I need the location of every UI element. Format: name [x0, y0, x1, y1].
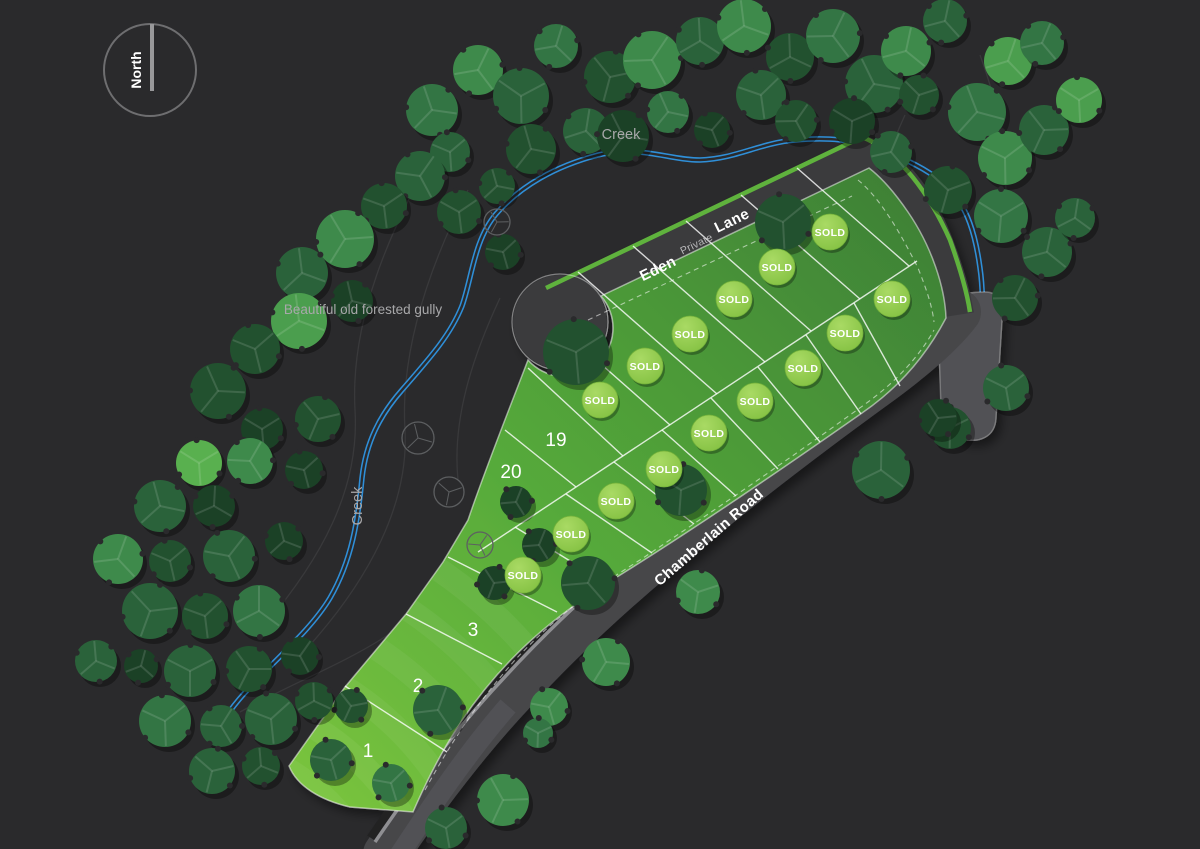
- tree-icon: [187, 746, 239, 799]
- lot-number-label[interactable]: 1: [363, 741, 374, 762]
- tree-icon: [93, 534, 147, 589]
- sold-badge-label: SOLD: [585, 395, 616, 407]
- tree-icon: [285, 449, 327, 494]
- sold-badge-label: SOLD: [694, 428, 725, 440]
- tree-icon: [241, 747, 284, 790]
- tree-icon: [281, 637, 323, 680]
- tree-icon: [139, 692, 195, 752]
- lot-number-label[interactable]: 19: [545, 430, 566, 451]
- tree-icon: [852, 441, 914, 504]
- sold-badge-label: SOLD: [601, 496, 632, 508]
- tree-icon: [694, 111, 734, 153]
- sold-badge-label: SOLD: [508, 570, 539, 582]
- north-label: North: [128, 51, 144, 88]
- tree-icon: [192, 485, 239, 532]
- sold-badge-label: SOLD: [762, 262, 793, 274]
- tree-icon: [176, 437, 226, 491]
- tree-icon: [200, 705, 246, 752]
- tree-icon: [245, 690, 301, 750]
- sold-badge-label: SOLD: [649, 464, 680, 476]
- tree-icon: [474, 773, 533, 831]
- tree-icon: [974, 186, 1032, 248]
- tree-icon: [131, 480, 190, 537]
- tree-icon: [223, 646, 276, 697]
- tree-icon: [644, 91, 693, 138]
- tree-icon: [534, 24, 582, 73]
- tree-icon: [182, 591, 232, 644]
- creek-label-top: Creek: [602, 127, 641, 143]
- tree-icon: [233, 585, 289, 642]
- sold-badge-label: SOLD: [719, 294, 750, 306]
- sold-badge-label: SOLD: [630, 361, 661, 373]
- tree-icon: [120, 582, 182, 644]
- lot-number-label[interactable]: 20: [500, 462, 521, 483]
- sold-badge-label: SOLD: [675, 329, 706, 341]
- sold-badge-label: SOLD: [830, 328, 861, 340]
- bare-tree-icon: [434, 477, 464, 507]
- tree-icon: [149, 538, 195, 587]
- sold-badge-label: SOLD: [740, 396, 771, 408]
- site-plan-map: 1920321 SOLDSOLDSOLDSOLDSOLDSOLDSOLDSOLD…: [0, 0, 1200, 849]
- sold-badge-label: SOLD: [815, 227, 846, 239]
- north-compass: North: [104, 24, 196, 116]
- tree-icon: [504, 124, 560, 179]
- tree-icon: [293, 394, 345, 447]
- lot-number-label[interactable]: 3: [468, 620, 479, 641]
- tree-icon: [263, 522, 307, 565]
- tree-icon: [164, 642, 220, 702]
- sold-badge-label: SOLD: [877, 294, 908, 306]
- sold-badge-label: SOLD: [788, 363, 819, 375]
- tree-icon: [675, 567, 724, 619]
- creek-label-left: Creek: [350, 486, 366, 525]
- bare-tree-icon: [402, 422, 434, 454]
- tree-icon: [485, 232, 525, 275]
- tree-icon: [203, 530, 259, 587]
- tree-icon: [74, 640, 121, 687]
- sold-badge-label: SOLD: [556, 529, 587, 541]
- tree-icon: [187, 363, 250, 424]
- gully-label: Beautiful old forested gully: [284, 302, 443, 317]
- tree-icon: [124, 649, 162, 688]
- tree-icon: [476, 168, 519, 209]
- site-plan-stage: 1920321 SOLDSOLDSOLDSOLDSOLDSOLDSOLDSOLD…: [0, 0, 1200, 849]
